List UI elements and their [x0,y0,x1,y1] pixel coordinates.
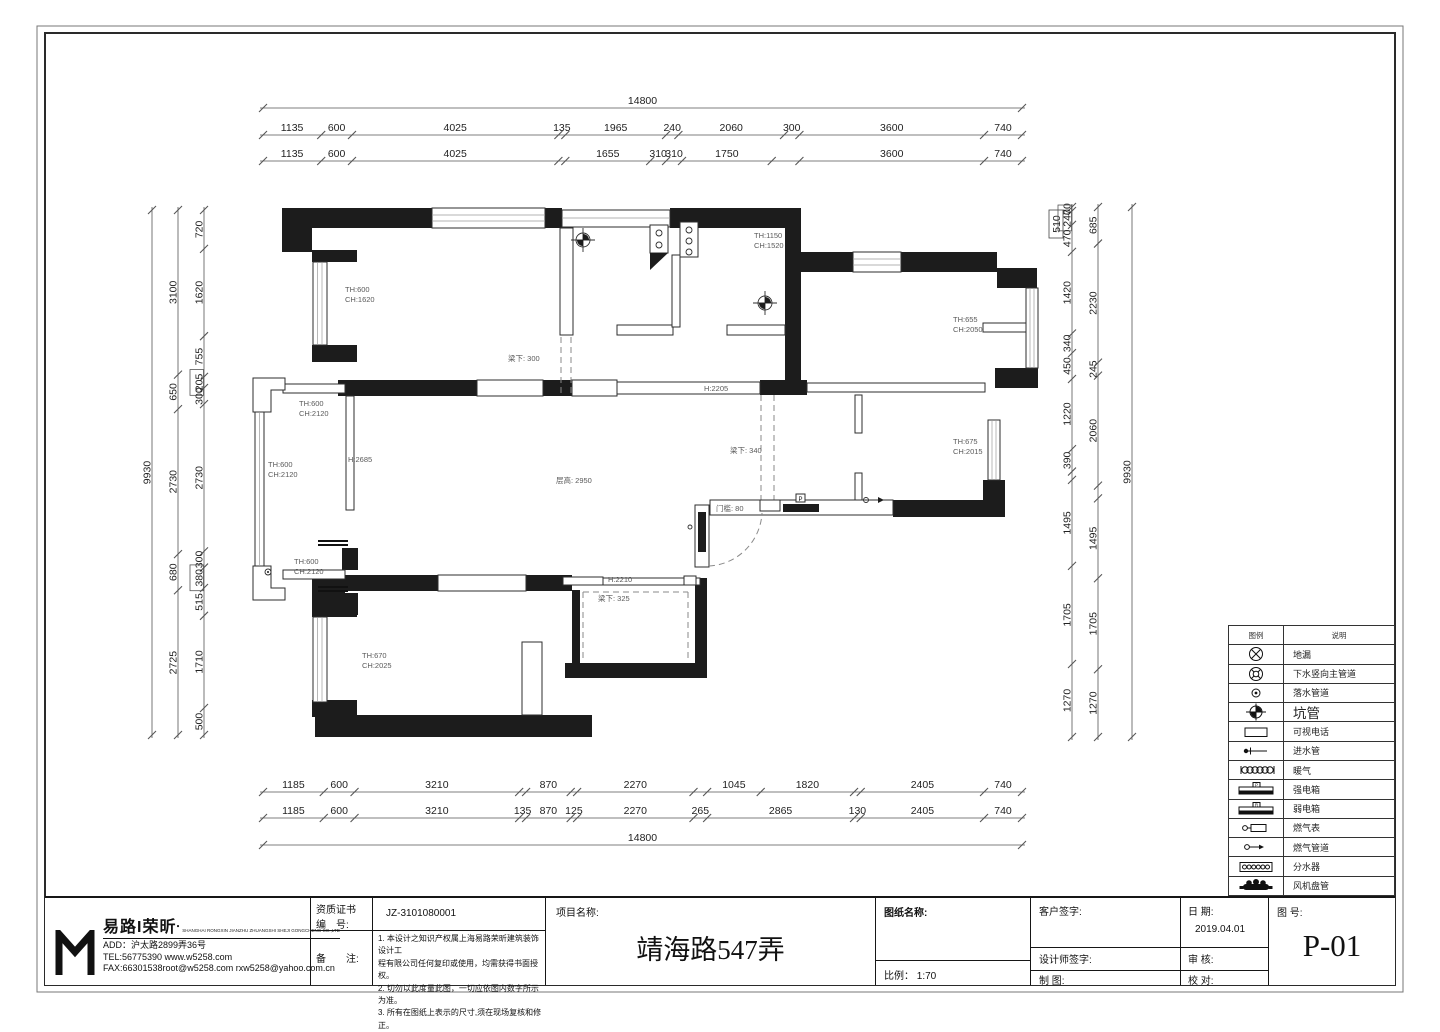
legend-row: 下水竖向主管道 [1229,664,1394,683]
dim-label: 470 [1062,229,1074,247]
legend-row: 燃气表 [1229,818,1394,837]
height-note: H:2685 [348,455,372,464]
height-note: H:2205 [704,384,728,393]
main-drain-pipe-icon [1229,665,1284,683]
legend-row: 进水管 [1229,741,1394,760]
company-name: 易路I荣昕 [103,919,176,936]
dim-label: 4025 [444,122,468,134]
gas-meter-icon [1229,819,1284,837]
dim-chain: 68522302452060149517051270 [1088,203,1103,741]
water-inlet-icon [1229,742,1284,760]
height-note: H:2210 [608,575,632,584]
dim-label: 650 [168,383,180,401]
dim-chain: 1185600321013587012522702652865130240574… [259,805,1026,822]
dim-label: 680 [168,563,180,581]
radiator-icon [1229,761,1284,779]
company-address: ADD：沪太路2899弄36号 [103,940,335,952]
legend-label: 暖气 [1284,761,1394,779]
dim-label: 755 [194,348,206,366]
dim-label: 515 [194,593,206,611]
legend-row: 落水管道 [1229,683,1394,702]
registered-mark: ● [176,924,179,930]
dim-label: 1135 [281,148,304,160]
legend-row: 风机盘管 [1229,876,1394,895]
power-box-icon: P [1229,780,1284,798]
dim-label: 685 [1088,216,1100,234]
dim-chain: 14800 [259,95,1026,112]
dim-label: 14800 [628,95,657,107]
dim-label: 2405 [911,805,935,817]
dim-label: 1710 [194,650,206,674]
dim-label: 2060 [720,122,744,134]
dim-label: 310 [665,148,683,160]
floor-plan-svg: P TH:600 CH:1620 梁下: 300 TH:1150 CH:1520… [0,0,1440,1018]
dim-label: 125 [565,805,583,817]
dim-label: 600 [330,779,348,791]
cert-number: JZ-3101080001 [386,908,456,919]
dim-label: 1270 [1088,691,1100,715]
dim-label: 500 [194,713,206,731]
video-phone-marker-icon [760,500,780,511]
dim-label: 390 [1062,451,1074,469]
legend-label: 分水器 [1284,857,1394,875]
dim-label: 600 [330,805,348,817]
room-note: CH:2015 [953,447,983,456]
downspout-icon [1229,684,1284,702]
dim-chain: 9930 [1122,203,1137,741]
dim-chain: 9930 [142,206,157,739]
dim-label: 2730 [168,470,180,494]
window-note: CH:2120 [299,409,329,418]
designer-sign-label: 设计师签字: [1039,951,1092,966]
room-note: TH:600 [345,285,370,294]
dim-label: 2230 [1088,291,1100,315]
window-note: TH:1150 [754,231,782,240]
dim-chain: 11356004025165531031017503600740 [259,148,1026,165]
project-name-value: 靖海路547弄 [546,928,875,967]
plan-annotations: TH:600 CH:1620 梁下: 300 TH:1150 CH:1520 T… [268,231,983,670]
dim-label: 1965 [604,122,628,134]
company-fax: FAX:66301538root@w5258.com rxw5258@yahoo… [103,963,335,975]
dim-label: 1185 [282,779,305,791]
dim-label: 1495 [1062,511,1074,535]
room-note: CH:2050 [953,325,983,334]
legend-table: 图例 说明 地漏 下水竖向主管道 落水管道 坑管 可视电话 [1228,625,1395,896]
dim-label: 3210 [425,805,449,817]
beam-note: 梁下: 340 [730,446,762,455]
dim-label: 9930 [142,461,154,485]
power-box-mark: P [798,497,802,503]
note-line: 2. 切勿以此度量此图，一切应依图内数字所示为准。 [378,983,543,1008]
dim-label: 870 [540,779,558,791]
manifold-icon [1229,857,1284,875]
date-value: 2019.04.01 [1195,924,1245,935]
dim-chain: 720162075520530027303003805151710500 [190,206,208,739]
room-note: TH:655 [953,315,978,324]
dim-label: 2730 [194,466,206,490]
draft-label: 制 图: [1039,972,1065,987]
dim-label: 2865 [769,805,793,817]
dim-chain: 7024047014203404501220390149517051270 [1058,203,1076,741]
legend-label: 落水管道 [1284,684,1394,702]
gas-pipe-icon [1229,838,1284,856]
beam-note: 梁下: 300 [508,354,540,363]
drawing-sheet: { "dims": { "top": { "total": [{"v":"148… [0,0,1440,1018]
dim-label: 3600 [880,122,904,134]
drawing-name-cell: 图纸名称: 比例： 1:70 [875,898,1030,985]
note-line: 1. 本设计之知识产权属上海易路荣昕建筑装饰设计工 [378,933,543,958]
title-block: 易路I荣昕● SHANGHAI RONGXIN JIANZHU ZHUANGSH… [45,896,1395,985]
dim-label: 1705 [1062,603,1074,627]
dim-label: 600 [328,122,346,134]
company-logo [55,930,95,978]
dim-chain: 310065027306802725 [168,206,183,739]
window-note: CH:2120 [294,567,324,576]
project-name-cell: 项目名称: 靖海路547弄 [545,898,875,985]
legend-label: 燃气表 [1284,819,1394,837]
legend-label: 坑管 [1284,703,1394,721]
room-note: TH:670 [362,651,387,660]
dim-label: 2405 [911,779,935,791]
door-sill-note: 门槛: 80 [716,503,744,513]
dim-label: 4025 [444,148,468,160]
drawing-name-label: 图纸名称: [884,904,927,919]
video-phone-icon [1229,722,1284,740]
dim-label: 265 [692,805,710,817]
dim-label: 450 [1062,357,1074,375]
client-sign-label: 客户签字: [1039,903,1082,918]
legend-row: 地漏 [1229,644,1394,663]
legend-label: 风机盘管 [1284,877,1394,895]
pit-pipe-icon [1229,703,1284,721]
company-cell: 易路I荣昕● SHANGHAI RONGXIN JIANZHU ZHUANGSH… [45,898,310,985]
dim-label: 1045 [722,779,746,791]
legend-label: 进水管 [1284,742,1394,760]
ceiling-height-note: 层高: 2950 [556,475,592,485]
legend-label: 下水竖向主管道 [1284,665,1394,683]
room-note: CH:2025 [362,661,392,670]
window-note: TH:600 [268,460,293,469]
dim-label: 300 [783,122,801,134]
dim-label: 340 [1062,334,1074,352]
windows [255,208,1038,702]
note-line: 程有限公司任何复印或使用，均需获得书面授权。 [378,958,543,983]
legend-row: P 强电箱 [1229,779,1394,798]
dim-label: 240 [663,122,681,134]
dim-label: 1655 [596,148,620,160]
fan-coil-icon [1229,877,1284,895]
scale-label: 比例： 1:70 [884,967,936,982]
window-note: CH:2120 [268,470,298,479]
company-tel: TEL:56775390 www.w5258.com [103,952,335,964]
dim-label: 1420 [1062,281,1074,305]
dim-label: 740 [994,122,1012,134]
window-note: TH:600 [299,399,324,408]
legend-label: 可视电话 [1284,722,1394,740]
dim-label: 3600 [880,148,904,160]
signatures-cell: 客户签字: 设计师签字: 制 图: [1030,898,1180,985]
legend-row: 坑管 [1229,702,1394,721]
dim-label: 1185 [282,805,305,817]
notes-label: 备 注: [316,950,359,965]
fig-no-value: P-01 [1269,928,1395,964]
svg-text:P: P [1255,783,1258,788]
room-note: CH:1620 [345,295,375,304]
review-label: 审 核: [1188,951,1214,966]
dim-label: 1220 [1062,402,1074,426]
legend-row: 分水器 [1229,856,1394,875]
legend-row: 暖气 [1229,760,1394,779]
legend-col-desc: 说明 [1284,626,1394,644]
dim-label: 2270 [624,805,648,817]
date-review-cell: 日 期: 2019.04.01 审 核: 校 对: [1180,898,1268,985]
dim-label: 1705 [1088,612,1100,636]
note-line: 3. 所有在图纸上表示的尺寸,须在现场复核和修正。 [378,1007,543,1032]
dim-label: 1750 [715,148,739,160]
dim-label: 130 [849,805,867,817]
dim-label: 740 [994,805,1012,817]
dim-label: 2060 [1088,419,1100,443]
beam-note: 梁下: 325 [598,594,630,603]
dim-label: 740 [994,148,1012,160]
dim-label: 135 [553,122,571,134]
pit-pipe-marker-icon [753,291,777,315]
dim-label: 1495 [1088,526,1100,550]
proof-label: 校 对: [1188,972,1214,987]
dim-label: 720 [194,221,206,239]
dim-label: 135 [514,805,532,817]
dim-label: 3100 [168,280,180,304]
dim-label: 300 [194,387,206,405]
dim-label: 3210 [425,779,449,791]
dim-label: 2270 [624,779,648,791]
weak-power-box-icon: R [1229,800,1284,818]
dim-label: 1620 [194,281,206,305]
dim-chain: 118560032108702270104518202405740 [259,779,1026,796]
dim-label: 245 [1088,360,1100,378]
dim-label: 14800 [628,832,657,844]
pit-pipe-marker-icon [571,228,595,252]
date-label: 日 期: [1188,903,1214,918]
legend-row: R 弱电箱 [1229,799,1394,818]
dim-label: 600 [328,148,346,160]
legend-label: 燃气管道 [1284,838,1394,856]
certificate-cell: 资质证书 编 号: JZ-3101080001 备 注: 1. 本设计之知识产权… [310,898,545,985]
legend-label: 地漏 [1284,645,1394,663]
legend-label: 强电箱 [1284,780,1394,798]
legend-row: 可视电话 [1229,721,1394,740]
legend-col-symbol: 图例 [1229,626,1284,644]
dim-label: 1270 [1062,689,1074,713]
project-name-label: 项目名称: [556,904,599,919]
window-note: TH:600 [294,557,319,566]
room-note: TH:675 [953,437,978,446]
floor-drain-icon [1229,645,1284,663]
dim-label: 1135 [281,122,304,134]
legend-label: 弱电箱 [1284,800,1394,818]
dim-label: 2725 [168,651,180,675]
dim-label: 870 [540,805,558,817]
dim-label: 1820 [796,779,820,791]
fig-no-label: 图 号: [1277,904,1303,919]
legend-header-row: 图例 说明 [1229,626,1394,644]
window-note: CH:1520 [754,241,784,250]
cert-label: 资质证书 [316,901,372,916]
cert-label2: 编 号: [316,916,372,931]
figure-number-cell: 图 号: P-01 [1268,898,1395,985]
walls [282,208,1038,737]
dim-label: 740 [994,779,1012,791]
legend-row: 燃气管道 [1229,837,1394,856]
dim-label: 9930 [1122,460,1134,484]
dim-chain: 11356004025135196524020603003600740 [259,122,1026,139]
dim-chain: 14800 [259,832,1026,849]
